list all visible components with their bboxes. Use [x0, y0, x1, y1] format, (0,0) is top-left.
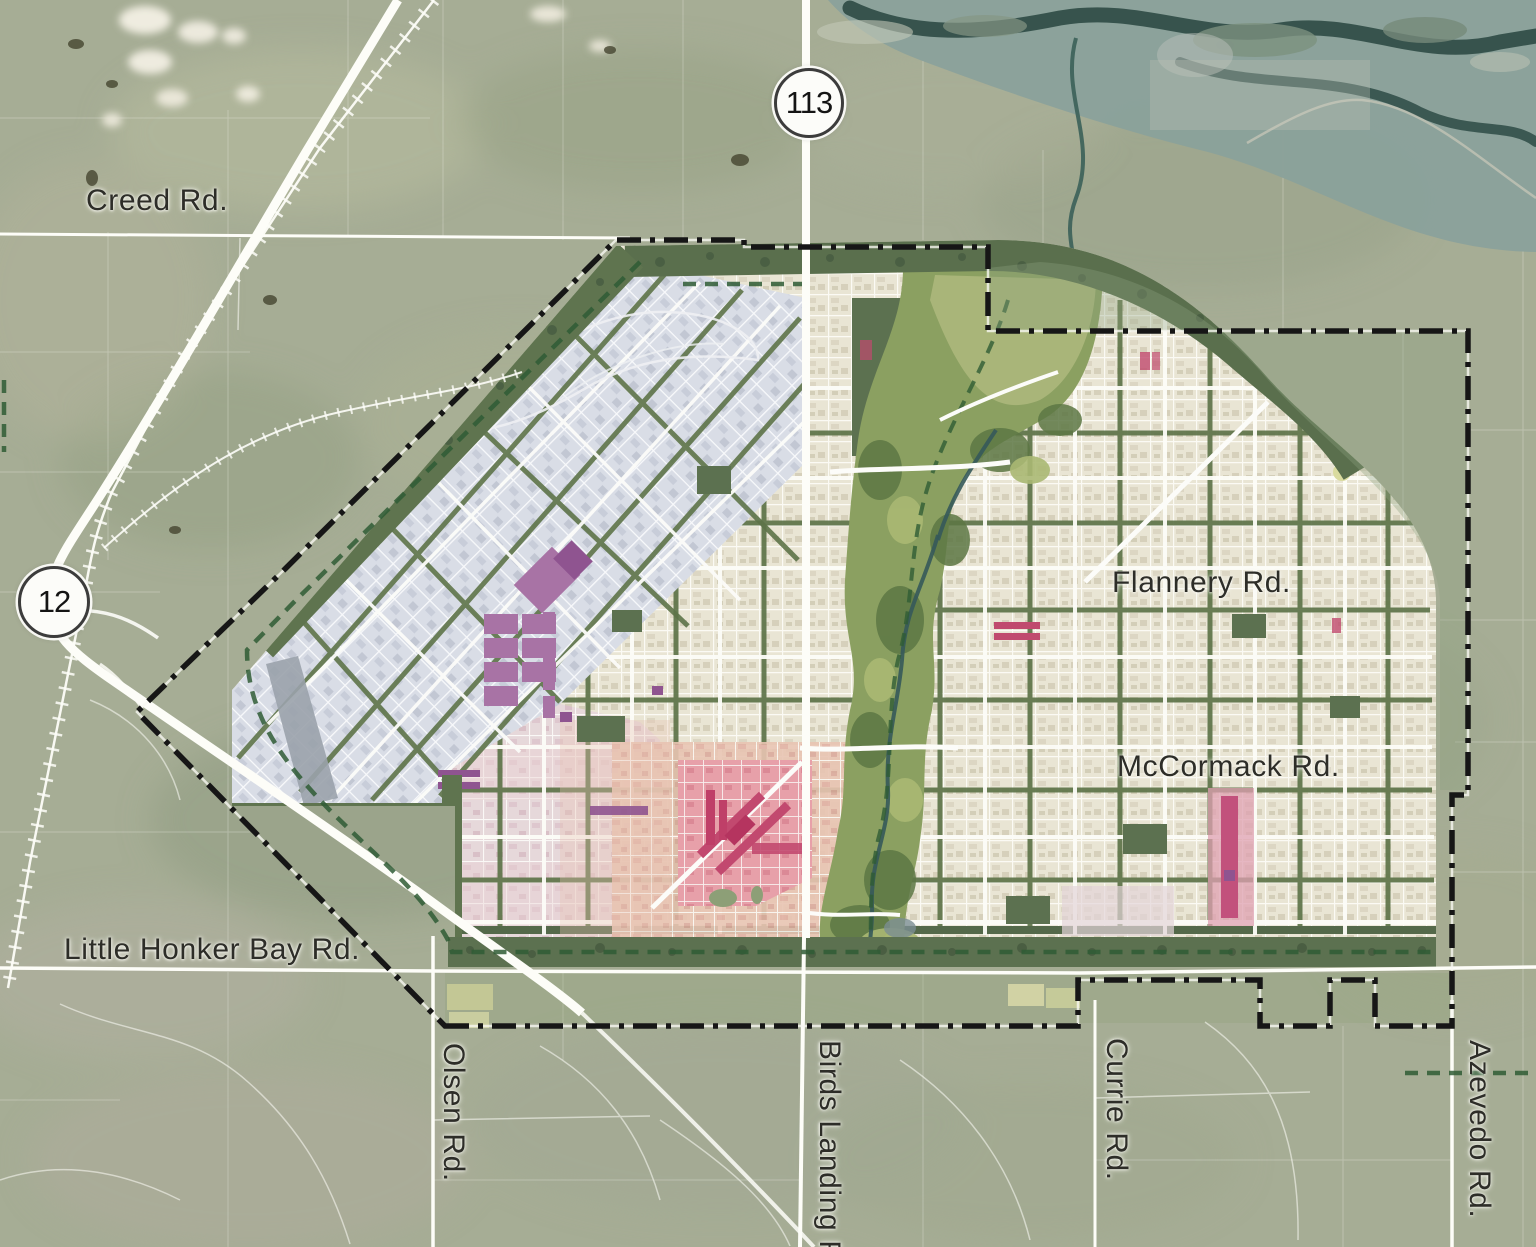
route-113-shield: 113 — [774, 68, 844, 138]
road-label-birds-landing: Birds Landing Rd. — [812, 1040, 846, 1247]
road-label-mccormack: McCormack Rd. — [1117, 750, 1340, 784]
road-label-olsen: Olsen Rd. — [436, 1043, 470, 1182]
road-label-little-honker-bay: Little Honker Bay Rd. — [64, 933, 360, 967]
road-label-flannery: Flannery Rd. — [1112, 566, 1291, 600]
route-12-shield: 12 — [18, 566, 90, 638]
route-12-number: 12 — [38, 584, 70, 620]
road-label-azevedo: Azevedo Rd. — [1462, 1040, 1496, 1218]
plan-map: Creed Rd. Flannery Rd. McCormack Rd. Lit… — [0, 0, 1536, 1247]
satellite-map-canvas — [0, 0, 1536, 1247]
south-greenbelt — [445, 943, 1452, 1028]
road-label-currie: Currie Rd. — [1099, 1038, 1133, 1181]
route-113-number: 113 — [786, 85, 832, 121]
road-label-creed: Creed Rd. — [86, 184, 228, 218]
